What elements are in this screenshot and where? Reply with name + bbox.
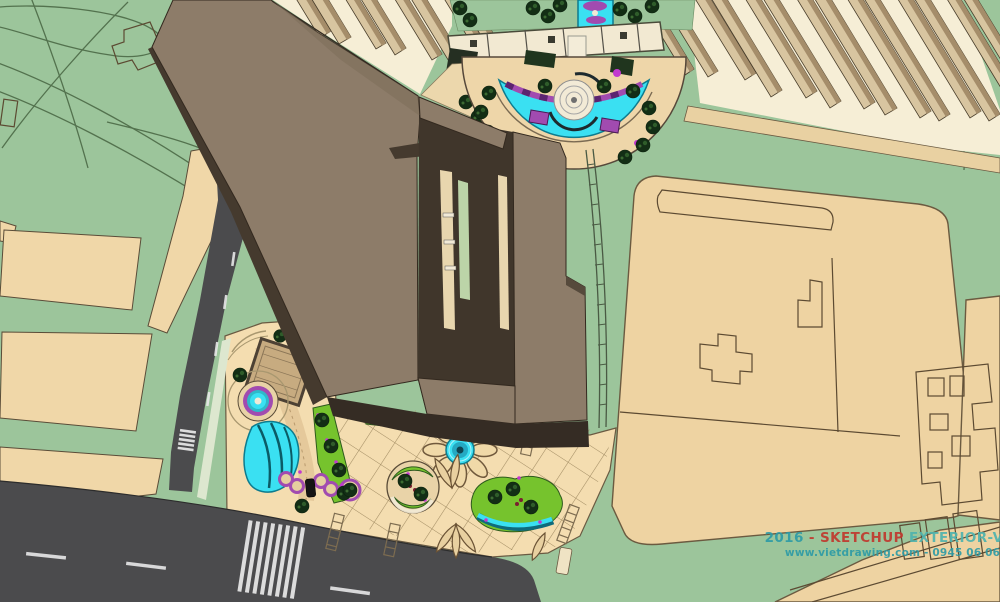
scene-canvas: 2016 - SKETCHUP EXTERIOR-VOL.6 www.vietd… [0, 0, 1000, 602]
cabana [529, 110, 549, 125]
car [305, 479, 316, 498]
watermark-line2: www.vietdrawing.com - 0945 06 06 08 [785, 547, 1000, 559]
water-channel [578, 0, 613, 28]
left-slab-roof [0, 230, 141, 310]
umbrella [613, 69, 621, 77]
planting-circle-bed [387, 461, 439, 513]
sketchup-aerial-render: 2016 - SKETCHUP EXTERIOR-VOL.6 www.vietd… [0, 0, 1000, 602]
watermark: 2016 - SKETCHUP EXTERIOR-VOL.6 www.vietd… [765, 530, 1000, 559]
watermark-line1: 2016 - SKETCHUP EXTERIOR-VOL.6 [765, 530, 1000, 546]
cabana [600, 118, 620, 133]
left-slab-roof [0, 332, 152, 431]
